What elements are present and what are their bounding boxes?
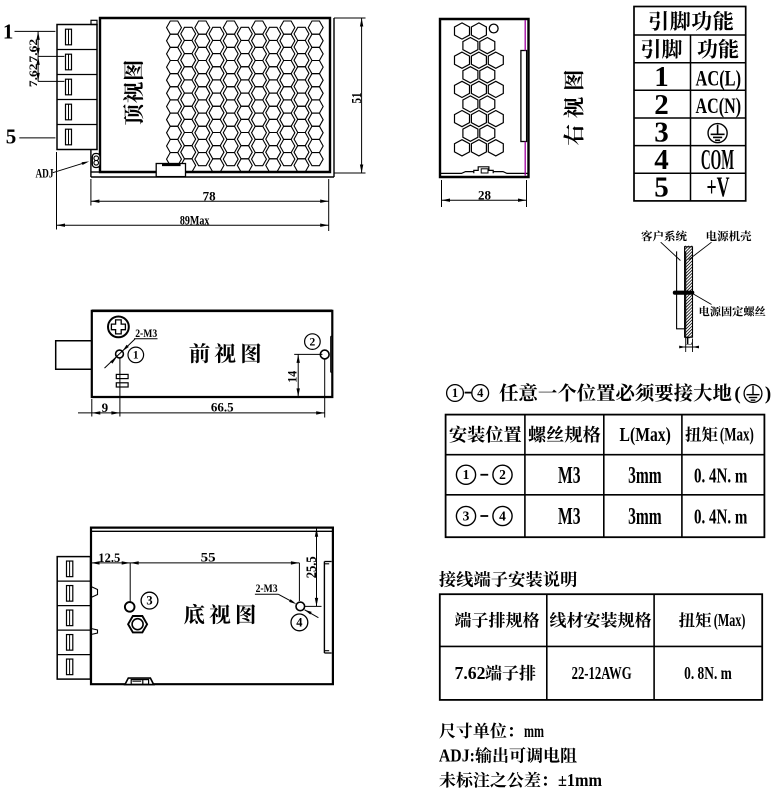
svg-text:0. 4N. m: 0. 4N. m	[694, 463, 747, 487]
svg-text:ADJ: ADJ	[36, 165, 54, 180]
svg-text:89Max: 89Max	[180, 212, 210, 227]
svg-text:51: 51	[350, 93, 365, 104]
svg-text:14: 14	[285, 370, 300, 382]
svg-text:AC(N): AC(N)	[696, 93, 742, 118]
svg-text:5: 5	[654, 172, 669, 204]
svg-text:+V: +V	[706, 172, 729, 204]
svg-text:4: 4	[477, 386, 484, 400]
svg-text:2-M3: 2-M3	[135, 328, 157, 340]
svg-text:mm: mm	[524, 721, 544, 741]
svg-text:0. 8N. m: 0. 8N. m	[684, 663, 732, 683]
svg-text:2-M3: 2-M3	[256, 583, 278, 595]
svg-text:28: 28	[478, 187, 492, 202]
svg-text:3mm: 3mm	[628, 504, 662, 530]
svg-text:7.62: 7.62	[455, 663, 486, 683]
svg-text:3mm: 3mm	[628, 463, 662, 489]
svg-text:5: 5	[6, 125, 17, 149]
svg-text:M3: M3	[558, 463, 581, 489]
svg-text:7.62: 7.62	[26, 39, 40, 63]
svg-text:12.5: 12.5	[98, 550, 120, 565]
svg-text:1: 1	[133, 350, 139, 362]
svg-text:(: (	[734, 384, 740, 405]
svg-text:2: 2	[310, 336, 316, 348]
svg-text:AC(L): AC(L)	[696, 65, 742, 90]
svg-text:1: 1	[452, 386, 458, 400]
svg-text:3: 3	[463, 508, 470, 523]
svg-text:0. 4N. m: 0. 4N. m	[694, 505, 747, 529]
svg-text:25.5: 25.5	[304, 556, 320, 578]
svg-text:3: 3	[146, 594, 152, 608]
svg-text:ADJ:: ADJ:	[439, 746, 475, 766]
svg-text:4: 4	[296, 616, 303, 630]
svg-text:(Max): (Max)	[720, 425, 754, 446]
svg-text:M3: M3	[558, 504, 581, 530]
svg-text:22-12AWG: 22-12AWG	[572, 663, 632, 683]
svg-text:7.62: 7.62	[26, 64, 40, 88]
svg-text:): )	[765, 384, 771, 405]
svg-text:±1mm: ±1mm	[558, 770, 602, 790]
svg-text:L: L	[686, 337, 693, 348]
svg-text:55: 55	[201, 549, 217, 564]
svg-text:66.5: 66.5	[211, 400, 234, 415]
svg-text:78: 78	[203, 188, 217, 203]
svg-text:(Max): (Max)	[714, 610, 746, 631]
svg-text:1: 1	[463, 467, 470, 482]
svg-text:L(Max): L(Max)	[620, 425, 671, 446]
svg-text:2: 2	[499, 467, 506, 482]
svg-text:9: 9	[102, 400, 109, 415]
svg-text:1: 1	[3, 19, 14, 43]
svg-text:4: 4	[499, 508, 506, 523]
